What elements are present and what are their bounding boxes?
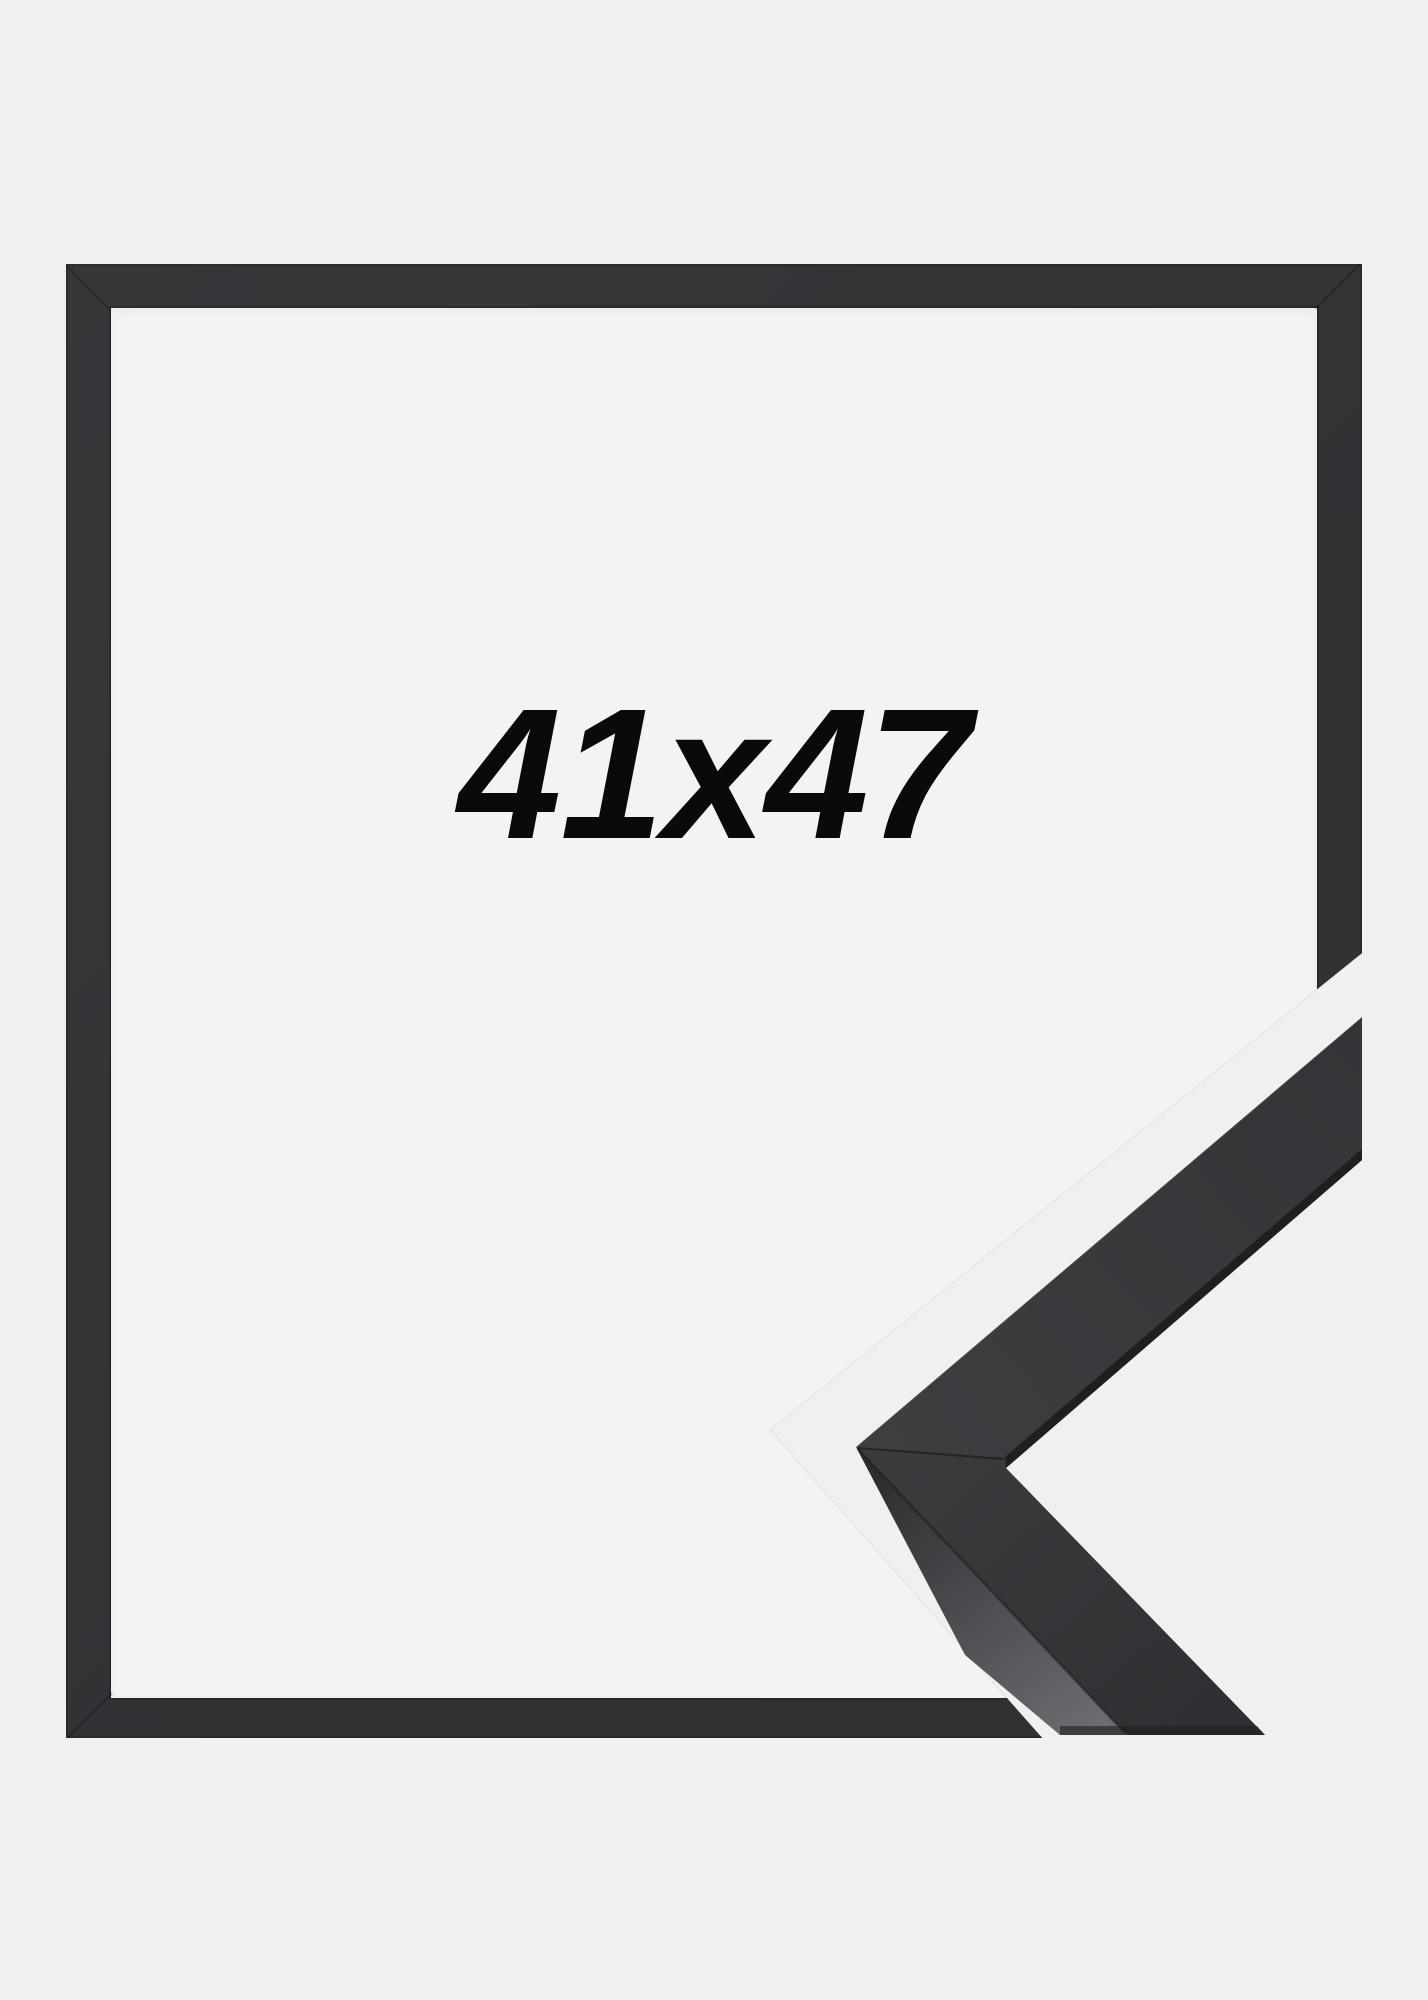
corner-upper-arm-highlight (856, 1017, 1362, 1447)
corner-upper-arm-face (856, 1017, 1362, 1468)
frame-size-label: 41x47 (458, 682, 970, 868)
corner-bottom-shadow (1060, 1726, 1265, 1735)
product-image-canvas: 41x47 (0, 0, 1428, 2000)
frame-corner-detail (0, 0, 1428, 2000)
